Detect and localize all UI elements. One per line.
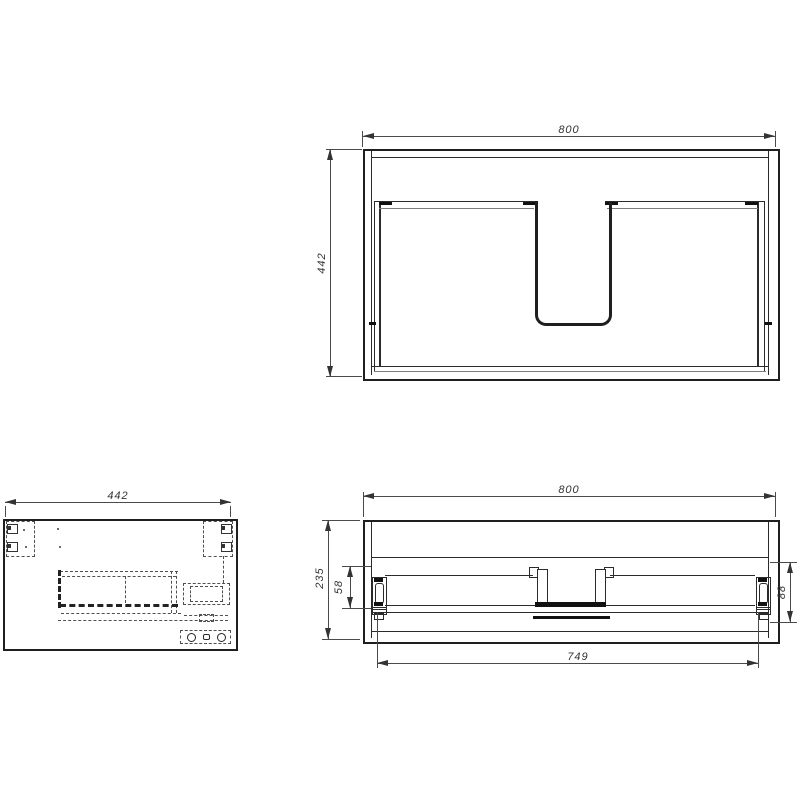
recess-wall [595, 569, 606, 605]
extension-line [342, 608, 371, 609]
recess-bottom [535, 602, 606, 607]
recess-wall [537, 569, 548, 605]
arrowhead [747, 660, 758, 666]
arrowhead [764, 493, 775, 499]
slide-foot [759, 613, 769, 620]
arrowhead [325, 628, 331, 639]
drawer-line [371, 612, 769, 613]
dim-plan-depth: 235 [314, 558, 326, 598]
extension-line [322, 639, 360, 640]
slide-end-cap [758, 578, 767, 582]
plan-view: 800 235 58 88 749 [0, 0, 800, 800]
slide-end-cap [374, 578, 383, 582]
dim-slide-height: 58 [333, 567, 345, 607]
slide-rail [759, 583, 768, 604]
slide-end-cap [374, 602, 383, 606]
arrowhead [325, 520, 331, 531]
dim-slide-depth: 88 [776, 572, 788, 612]
slide-rail [375, 583, 384, 604]
front-panel-line [371, 631, 769, 632]
bracket-line [533, 616, 610, 619]
dim-plan-width: 800 [549, 484, 589, 496]
back-panel-line [371, 557, 769, 558]
dimension-line [328, 520, 329, 639]
slide-end-cap [758, 602, 767, 606]
arrowhead [347, 597, 353, 608]
cabinet-plan-outline [363, 520, 780, 644]
arrowhead [787, 611, 793, 622]
arrowhead [363, 493, 374, 499]
drawer-back-line [610, 575, 755, 576]
dimension-line [363, 496, 775, 497]
drawer-back-line [385, 575, 533, 576]
technical-drawing-canvas: 800 442 442 [0, 0, 800, 800]
slide-foot [374, 613, 384, 620]
extension-line [775, 492, 776, 517]
dimension-line [377, 663, 758, 664]
arrowhead [347, 566, 353, 577]
extension-line [758, 612, 759, 668]
extension-line [770, 622, 797, 623]
arrowhead [377, 660, 388, 666]
dim-runner-span: 749 [558, 651, 598, 663]
